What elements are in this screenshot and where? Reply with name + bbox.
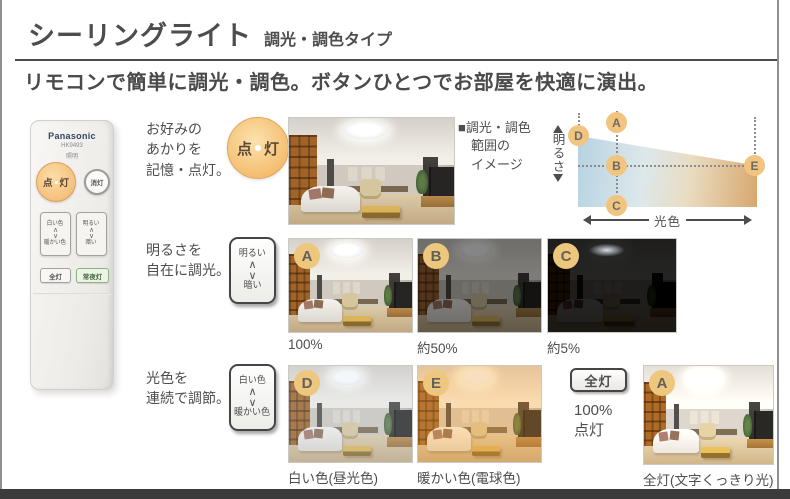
arrow-right-icon xyxy=(744,215,757,225)
remote-model-label: 照明 xyxy=(31,151,113,160)
power-on-char: 灯 xyxy=(60,175,70,189)
right-page-border xyxy=(777,0,779,489)
tv xyxy=(754,411,773,438)
bright-down-label: 暗い xyxy=(86,240,97,247)
photo-caption: 約50% xyxy=(417,337,542,357)
room-photo-100pct: A 100% xyxy=(288,238,413,352)
cushion xyxy=(573,300,583,309)
tv-stand xyxy=(516,437,541,447)
section-divider-bar xyxy=(0,489,790,499)
color-rocker-callout[interactable]: 白い色 ∧ ∨ 暖かい色 xyxy=(229,364,276,431)
room-photo: B xyxy=(417,238,542,333)
table xyxy=(472,446,500,457)
photo-badge: C xyxy=(553,243,579,269)
page-header: シーリングライト 調光・調色タイプ xyxy=(28,14,392,53)
chair xyxy=(342,422,358,439)
wall-art xyxy=(690,411,718,424)
remote-all-on-button[interactable]: 全灯 xyxy=(40,268,71,283)
color-down-label: 暖かい色 xyxy=(44,240,66,247)
cushion xyxy=(313,300,322,309)
chair xyxy=(342,293,358,310)
wall-art xyxy=(462,410,489,422)
color-down-label: 暖かい色 xyxy=(234,408,270,419)
photo-caption: 暖かい色(電球色) xyxy=(417,467,542,487)
remote-color-rocker[interactable]: 白い色 ∧ ∨ 暖かい色 xyxy=(40,212,71,256)
diagram-legend: ■調光・調色 範囲の イメージ xyxy=(458,119,531,174)
remote-brightness-rocker[interactable]: 明るい ∧ ∨ 暗い xyxy=(76,212,107,256)
y-axis-label: 明るさ xyxy=(549,133,568,174)
remote-seam xyxy=(33,293,111,295)
ceiling-light xyxy=(330,243,363,258)
tv-stand xyxy=(650,308,676,317)
tv-stand xyxy=(387,308,412,317)
power-dot-icon xyxy=(255,145,261,151)
photo-badge: A xyxy=(294,243,320,269)
page-title: シーリングライト xyxy=(28,14,252,53)
color-up-label: 白い色 xyxy=(239,376,266,387)
remote-power-off-button[interactable]: 消灯 xyxy=(84,169,110,195)
chevron-up-icon: ∧ xyxy=(248,260,256,270)
room-photo-full-on: A 全灯(文字くっきり光) xyxy=(643,365,774,489)
plant xyxy=(743,414,752,437)
memory-feature-label: お好みの あかりを 記憶・点灯。 xyxy=(146,119,238,180)
bright-up-label: 明るい xyxy=(239,249,266,260)
power-on-char: 点 xyxy=(237,138,252,159)
tv xyxy=(394,410,412,437)
ceiling-light xyxy=(687,370,722,386)
cushion xyxy=(432,301,442,310)
room-photo-5pct: C 約5% xyxy=(547,238,677,357)
photo-caption: 100% xyxy=(288,337,413,352)
cushion xyxy=(563,301,573,311)
cushion xyxy=(669,430,679,440)
tv xyxy=(523,410,541,437)
cushion xyxy=(303,430,313,440)
color-feature-label: 光色を 連続で調節。 xyxy=(146,368,238,409)
plant xyxy=(647,285,656,306)
chair xyxy=(360,179,381,198)
room-photo-warm-white: E 暖かい色(電球色) xyxy=(417,365,542,487)
range-gradient-area xyxy=(578,117,757,207)
photo-caption: 全灯(文字くっきり光) xyxy=(643,469,774,489)
table xyxy=(472,316,500,326)
ceiling-light xyxy=(330,370,363,385)
dotted-guide-line xyxy=(578,165,748,167)
room-photo-memory xyxy=(288,117,455,225)
x-axis-line xyxy=(590,219,649,221)
tv xyxy=(394,282,412,308)
wall-art xyxy=(348,167,384,181)
room-photo: E xyxy=(417,365,542,463)
tv-stand xyxy=(387,437,412,447)
cushion xyxy=(313,429,322,438)
photo-badge: B xyxy=(423,243,449,269)
room-photo: D xyxy=(288,365,413,463)
ceiling-light xyxy=(459,243,492,258)
photo-badge: A xyxy=(649,370,675,396)
x-axis-line xyxy=(686,219,745,221)
room-photo-50pct: B 約50% xyxy=(417,238,542,357)
photo-badge: D xyxy=(294,370,320,396)
plant xyxy=(384,413,393,435)
chair xyxy=(471,422,487,439)
diagram-y-axis: 明るさ xyxy=(549,120,567,214)
room-photo-cool-white: D 白い色(昼光色) xyxy=(288,365,413,487)
plant xyxy=(416,170,428,194)
cushion xyxy=(442,429,451,438)
room-photo xyxy=(288,117,455,225)
plant xyxy=(513,285,522,306)
table xyxy=(343,316,371,326)
table xyxy=(604,316,633,326)
arrow-down-icon xyxy=(553,174,563,187)
power-on-char: 点 xyxy=(43,175,53,189)
tv xyxy=(523,282,541,308)
cushion xyxy=(303,301,313,310)
tv xyxy=(429,167,454,197)
point-d: D xyxy=(568,125,589,146)
photo-caption: 白い色(昼光色) xyxy=(288,467,413,487)
brand-logo: Panasonic xyxy=(31,131,113,141)
bright-up-label: 明るい xyxy=(83,221,100,228)
chair xyxy=(699,423,716,441)
ceiling-light xyxy=(459,370,492,385)
power-on-char: 灯 xyxy=(264,138,279,159)
point-a: A xyxy=(606,112,627,133)
photo-caption: 約5% xyxy=(547,337,677,357)
chair xyxy=(603,293,620,310)
catalog-page: シーリングライト 調光・調色タイプ リモコンで簡単に調光・調色。ボタンひとつでお… xyxy=(0,0,790,499)
plant xyxy=(384,285,393,306)
ceiling-light xyxy=(590,243,625,258)
remote-power-on-button[interactable]: 点 灯 xyxy=(36,162,76,202)
chair xyxy=(471,293,487,310)
power-on-button-callout[interactable]: 点 灯 xyxy=(227,117,289,179)
room-scene xyxy=(289,118,454,224)
table xyxy=(343,446,371,457)
room-photo: A xyxy=(288,238,413,333)
left-page-border xyxy=(0,0,2,489)
remote-model: HK9493 xyxy=(31,143,113,149)
all-on-button-callout[interactable]: 全灯 xyxy=(570,368,627,392)
color-up-label: 白い色 xyxy=(47,221,64,228)
chevron-up-icon: ∧ xyxy=(248,387,256,397)
table xyxy=(362,206,400,218)
tv xyxy=(657,282,676,308)
page-title-type: 調光・調色タイプ xyxy=(264,26,392,50)
remote-control: Panasonic HK9493 照明 点 灯 消灯 白い色 ∧ ∨ 暖かい色 … xyxy=(30,120,114,390)
wall-art xyxy=(333,410,360,422)
arrow-up-icon xyxy=(553,120,563,133)
cushion xyxy=(659,431,669,441)
photo-badge: E xyxy=(423,370,449,396)
remote-night-light-button[interactable]: 常夜灯 xyxy=(76,268,109,283)
page-subtitle: リモコンで簡単に調光・調色。ボタンひとつでお部屋を快適に演出。 xyxy=(24,66,658,95)
all-on-note: 100% 点灯 xyxy=(574,401,612,440)
tv-stand xyxy=(747,439,773,449)
plant xyxy=(513,413,522,435)
brightness-rocker-callout[interactable]: 明るい ∧ ∨ 暗い xyxy=(229,237,276,304)
room-photo: A xyxy=(643,365,774,465)
diagram-x-axis: 光色 xyxy=(578,212,757,228)
bright-down-label: 暗い xyxy=(243,281,261,292)
cushion xyxy=(322,187,334,198)
tv-stand xyxy=(516,308,541,317)
cushion xyxy=(442,300,451,309)
power-dot-icon xyxy=(55,181,58,184)
room-photo: C xyxy=(547,238,677,333)
title-underline xyxy=(15,59,777,61)
point-b: B xyxy=(606,155,627,176)
tv-stand xyxy=(421,196,454,207)
cushion xyxy=(308,188,321,199)
point-e: E xyxy=(744,155,765,176)
table xyxy=(701,447,731,458)
cushion xyxy=(432,430,442,440)
x-axis-label: 光色 xyxy=(649,211,686,230)
dimming-range-chart: D A B C E xyxy=(578,117,757,207)
brightness-feature-label: 明るさを 自在に調光。 xyxy=(146,240,238,281)
